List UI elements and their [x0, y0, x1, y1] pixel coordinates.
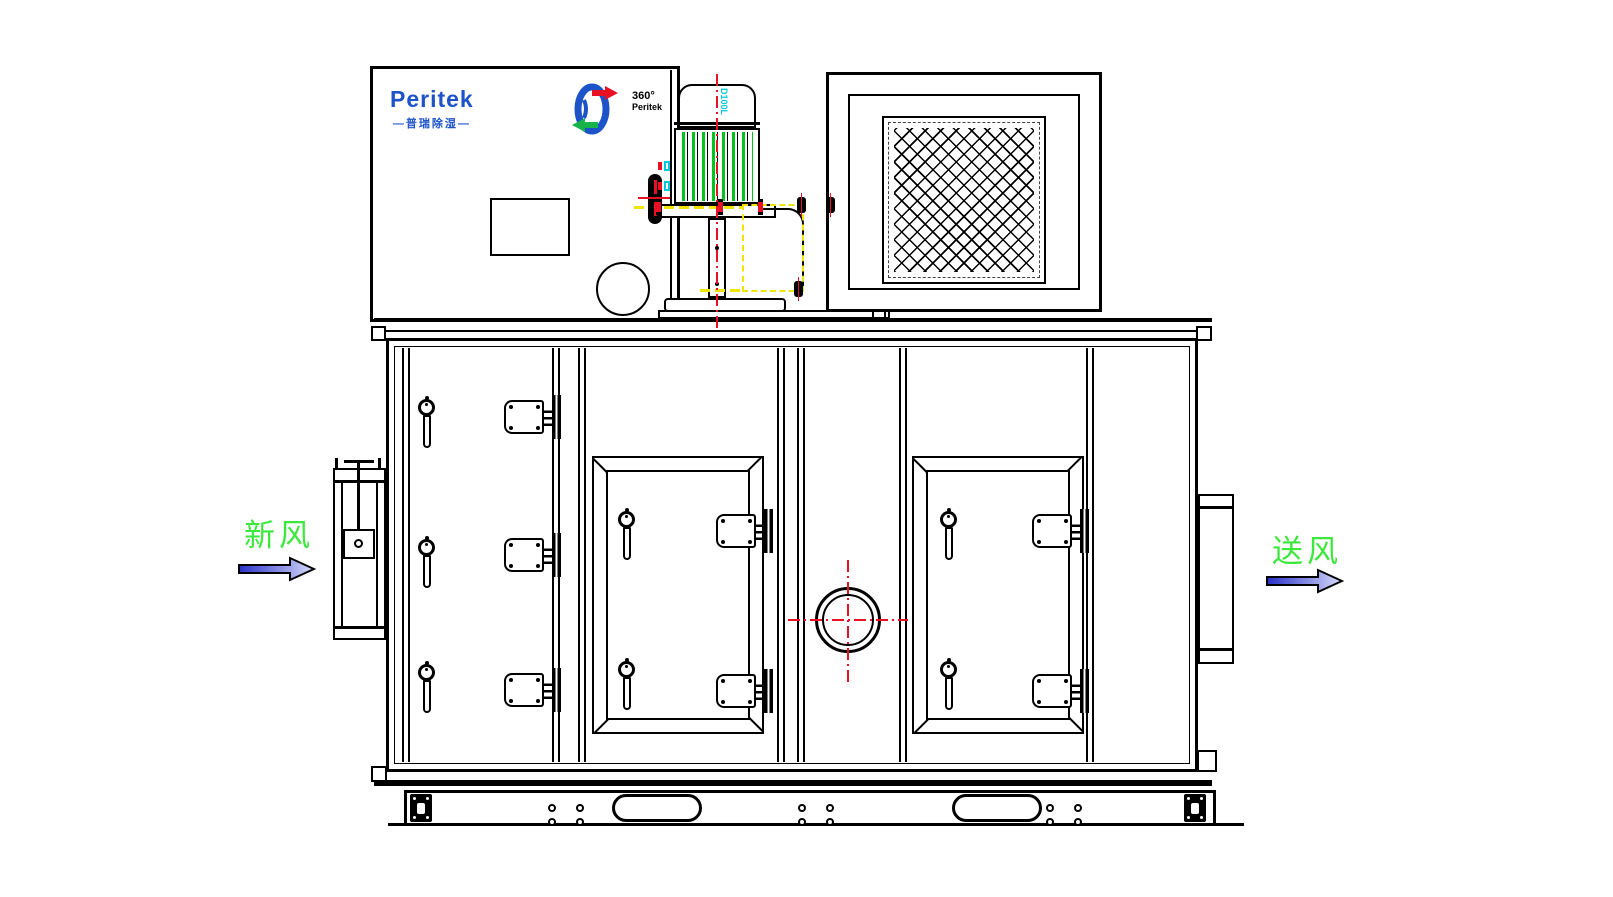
outlet-flow-arrow	[1266, 568, 1344, 594]
peritek-logo-chinese: —普瑞除湿—	[390, 115, 474, 131]
control-box-outline	[490, 198, 570, 256]
drawing-primitive	[1267, 570, 1342, 592]
door-latch-handle	[940, 658, 958, 712]
rotor-badge-text: 360° Peritek	[632, 90, 662, 112]
drawing-primitive	[536, 564, 540, 568]
drawing-primitive	[239, 558, 314, 580]
cabinet-bottom-right-step	[1197, 750, 1217, 772]
drawing-primitive	[423, 555, 431, 588]
hidden-line-rect	[742, 204, 804, 292]
base-rail-hole	[1046, 818, 1054, 826]
door-hinge	[504, 533, 562, 577]
peritek-logo-text: Peritek	[390, 86, 474, 113]
drawing-primitive	[947, 515, 950, 518]
drawing-primitive	[509, 426, 513, 430]
drawing-primitive	[748, 700, 752, 704]
drawing-primitive	[1200, 797, 1203, 800]
base-rail-hole	[548, 818, 556, 826]
drawing-primitive	[1064, 679, 1068, 683]
drawing-primitive	[509, 678, 513, 682]
drawing-primitive	[764, 669, 773, 713]
actuator-shaft-circle	[354, 539, 363, 548]
bolt-centerline-tick	[830, 193, 832, 217]
door-latch-handle	[418, 536, 436, 590]
inlet-inner-line	[376, 483, 378, 626]
drawing-primitive	[623, 677, 631, 710]
drawing-primitive	[625, 515, 628, 518]
hidden-line-horizontal	[700, 289, 744, 292]
drawing-primitive	[721, 679, 725, 683]
base-rail-hole	[548, 804, 556, 812]
cabinet-top-left-step	[371, 326, 386, 341]
drawing-primitive	[425, 543, 428, 546]
inlet-corner-tick	[335, 458, 338, 468]
cabinet-mullion-line	[408, 348, 410, 762]
drawing-primitive	[945, 677, 953, 710]
drawing-primitive	[1064, 519, 1068, 523]
drawing-primitive	[1080, 509, 1089, 553]
cabinet-top-cap	[374, 318, 1212, 322]
cabinet-mullion-line	[584, 348, 586, 762]
outlet-flange-bottom	[1198, 648, 1234, 651]
drawing-primitive	[418, 539, 435, 556]
peritek-logo: Peritek —普瑞除湿—	[390, 86, 474, 131]
drawing-primitive	[426, 816, 429, 819]
drawing-primitive	[552, 668, 561, 712]
door-latch-handle	[418, 661, 436, 715]
cabinet-mullion-line	[1092, 348, 1094, 762]
drawing-primitive	[423, 415, 431, 448]
base-rail	[404, 790, 1216, 826]
drawing-primitive	[584, 100, 586, 118]
cabinet-mullion-line	[803, 348, 805, 762]
base-corner-bracket	[1184, 794, 1206, 822]
inlet-corner-tick	[378, 458, 381, 468]
drawing-primitive	[552, 533, 561, 577]
drawing-primitive	[945, 527, 953, 560]
drawing-primitive	[418, 399, 435, 416]
drawing-primitive	[748, 679, 752, 683]
inlet-flow-arrow	[238, 556, 316, 582]
damper-rod	[357, 463, 360, 529]
cabinet-bottom-left-step	[371, 766, 387, 782]
drawing-primitive	[536, 543, 540, 547]
drawing-primitive	[426, 797, 429, 800]
drawing-primitive	[623, 527, 631, 560]
drawing-primitive	[509, 564, 513, 568]
panel-sight-circle	[596, 262, 650, 316]
drawing-primitive	[509, 405, 513, 409]
door-hinge	[504, 668, 562, 712]
drawing-primitive	[721, 700, 725, 704]
red-bolt	[718, 199, 723, 215]
drawing-primitive	[1187, 816, 1190, 819]
outlet-duct	[1198, 494, 1234, 664]
door-hinge	[1032, 509, 1090, 553]
drawing-primitive	[721, 519, 725, 523]
base-rail-hole	[1074, 818, 1082, 826]
drawing-primitive	[509, 543, 513, 547]
drawing-primitive	[423, 680, 431, 713]
door-hinge	[716, 669, 774, 713]
cabinet-mullion-line	[783, 348, 785, 762]
drawing-primitive	[413, 816, 416, 819]
drawing-primitive	[1037, 540, 1041, 544]
panel-inner-edge-line	[670, 70, 672, 318]
base-rail-hole	[826, 804, 834, 812]
drawing-primitive	[1187, 797, 1190, 800]
motor-centerline	[716, 74, 718, 332]
drawing-primitive	[618, 661, 635, 678]
base-rail-hole	[826, 818, 834, 826]
drawing-primitive	[1037, 700, 1041, 704]
latch-centerline-tick	[638, 197, 670, 199]
drawing-primitive	[536, 426, 540, 430]
drawing-primitive	[536, 678, 540, 682]
drawing-primitive	[764, 509, 773, 553]
drawing-primitive	[417, 803, 425, 814]
base-rail-hole	[1074, 804, 1082, 812]
base-rail-hole	[576, 818, 584, 826]
drawing-primitive	[940, 511, 957, 528]
door-latch-handle	[618, 508, 636, 562]
door-latch-handle	[940, 508, 958, 562]
drawing-primitive	[536, 405, 540, 409]
bolt-centerline-tick	[801, 193, 803, 217]
door-hinge	[504, 395, 562, 439]
door-latch-handle	[618, 658, 636, 712]
bolt-centerline-tick	[798, 277, 800, 301]
motor-cooling-fins	[682, 132, 753, 201]
drawing-primitive	[552, 395, 561, 439]
grille-mesh	[894, 128, 1034, 272]
rotor-wheel-icon	[562, 82, 628, 136]
drawing-primitive	[1200, 816, 1203, 819]
outlet-flange-top	[1198, 506, 1234, 509]
cabinet-top-right-step	[1196, 326, 1212, 341]
drawing-primitive	[940, 661, 957, 678]
drawing-primitive	[1191, 803, 1199, 814]
drawing-primitive	[536, 699, 540, 703]
drawing-primitive	[625, 665, 628, 668]
inlet-flange-bottom	[333, 626, 386, 629]
base-rail-hole	[798, 804, 806, 812]
drawing-primitive	[1037, 679, 1041, 683]
cyan-clip	[664, 181, 670, 191]
forklift-slot	[952, 794, 1042, 822]
red-fastener	[658, 162, 662, 170]
cabinet-mullion-line	[578, 348, 580, 762]
base-rail-hole	[798, 818, 806, 826]
drawing-primitive	[425, 403, 428, 406]
red-fastener	[658, 182, 662, 190]
base-rail-hole	[1046, 804, 1054, 812]
base-rail-hole	[576, 804, 584, 812]
cabinet-bottom-bar	[374, 780, 1212, 786]
door-latch-handle	[418, 396, 436, 450]
rotor-badge-degree: 360°	[632, 90, 662, 102]
base-corner-bracket	[410, 794, 432, 822]
cabinet-top-thin-line	[386, 330, 1198, 332]
inlet-air-label: 新风	[244, 510, 314, 555]
drawing-primitive	[509, 699, 513, 703]
drawing-primitive	[1037, 519, 1041, 523]
cabinet-mullion-line	[899, 348, 901, 762]
drawing-primitive	[748, 540, 752, 544]
cabinet-mullion-line	[797, 348, 799, 762]
sight-glass-centerline-v	[847, 560, 849, 682]
rotor-badge-name: Peritek	[632, 102, 662, 112]
drawing-primitive	[1064, 700, 1068, 704]
cabinet-mullion-line	[777, 348, 779, 762]
drawing-primitive	[413, 797, 416, 800]
motor-frame-label: D100L	[719, 88, 729, 115]
outlet-air-label: 送风	[1272, 526, 1342, 571]
cyan-clip	[664, 161, 670, 171]
drawing-primitive	[1064, 540, 1068, 544]
red-bolt	[656, 199, 661, 215]
drawing-primitive	[418, 664, 435, 681]
drawing-primitive	[748, 519, 752, 523]
drawing-primitive	[618, 511, 635, 528]
cabinet-mullion-line	[905, 348, 907, 762]
dehumidifier-elevation-drawing: Peritek —普瑞除湿— 360° Peritek D100L	[0, 0, 1613, 897]
drawing-primitive	[1080, 669, 1089, 713]
drawing-primitive	[947, 665, 950, 668]
red-bolt	[758, 199, 763, 215]
cabinet-mullion-line	[402, 348, 404, 762]
door-hinge	[716, 509, 774, 553]
forklift-slot	[612, 794, 702, 822]
drawing-primitive	[425, 668, 428, 671]
drawing-primitive	[721, 540, 725, 544]
door-hinge	[1032, 669, 1090, 713]
latch-red-dash	[654, 180, 657, 194]
